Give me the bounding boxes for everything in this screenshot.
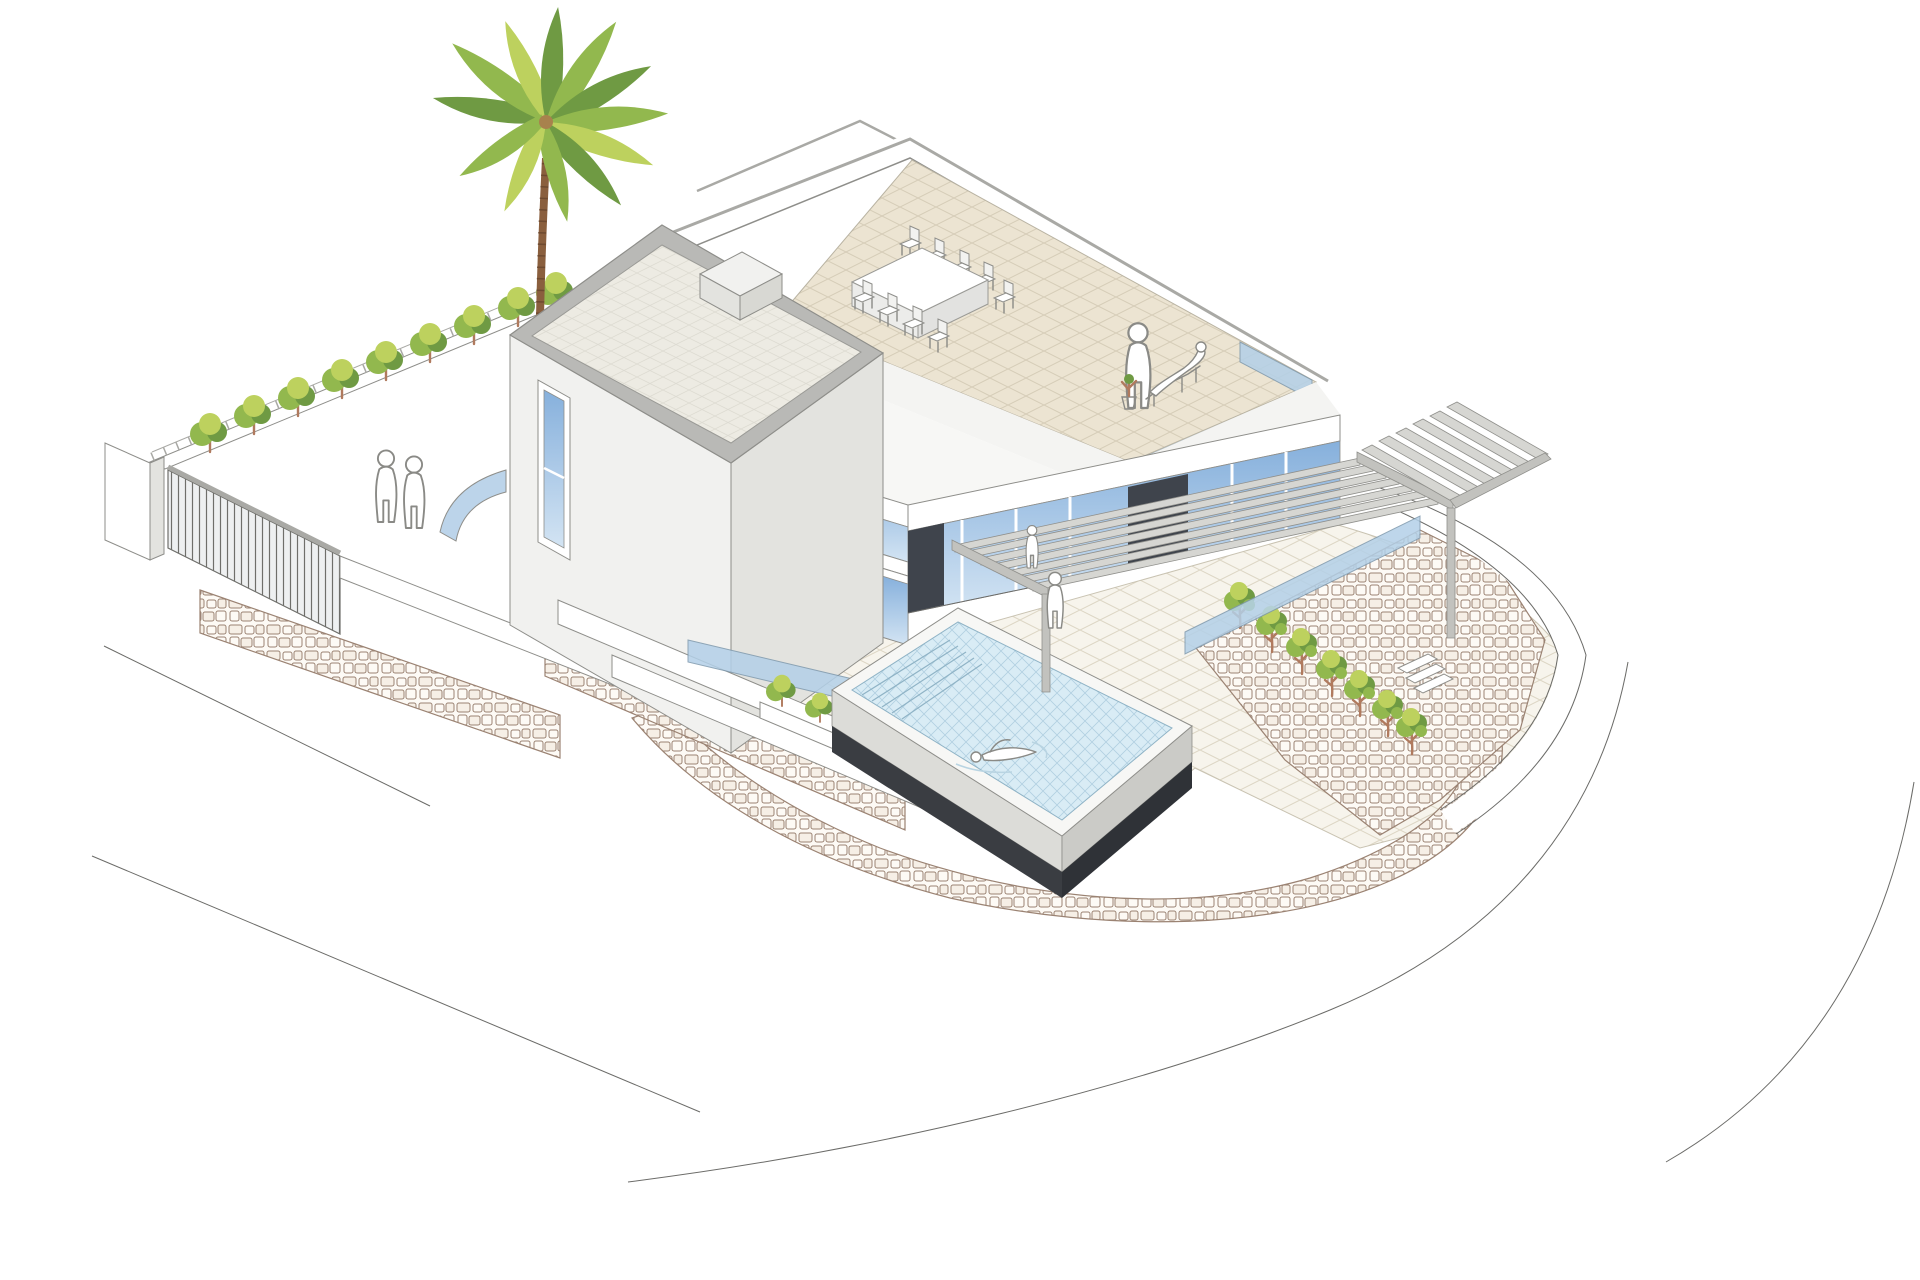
pergola-post <box>1447 508 1455 638</box>
stone-strip-gate <box>200 590 560 758</box>
corner-dark-panel <box>908 523 944 613</box>
pergola-slats-perpendicular <box>1362 402 1548 502</box>
standing-person <box>376 450 396 522</box>
gate-pillar <box>105 443 150 560</box>
palm-crown <box>539 115 553 129</box>
standing-person <box>404 456 424 528</box>
people-garden <box>376 450 424 528</box>
gate-pillar-side <box>150 457 164 560</box>
tower-window-slit <box>538 380 570 560</box>
architectural-illustration <box>0 0 1920 1280</box>
palm-fronds <box>431 6 669 224</box>
curved-glass-entrance <box>440 470 506 541</box>
road-curve-far-right <box>1666 782 1914 1162</box>
road-line-bottom-left <box>92 856 700 1112</box>
villa-drawing <box>0 0 1920 1280</box>
west-glass-door <box>882 576 908 645</box>
